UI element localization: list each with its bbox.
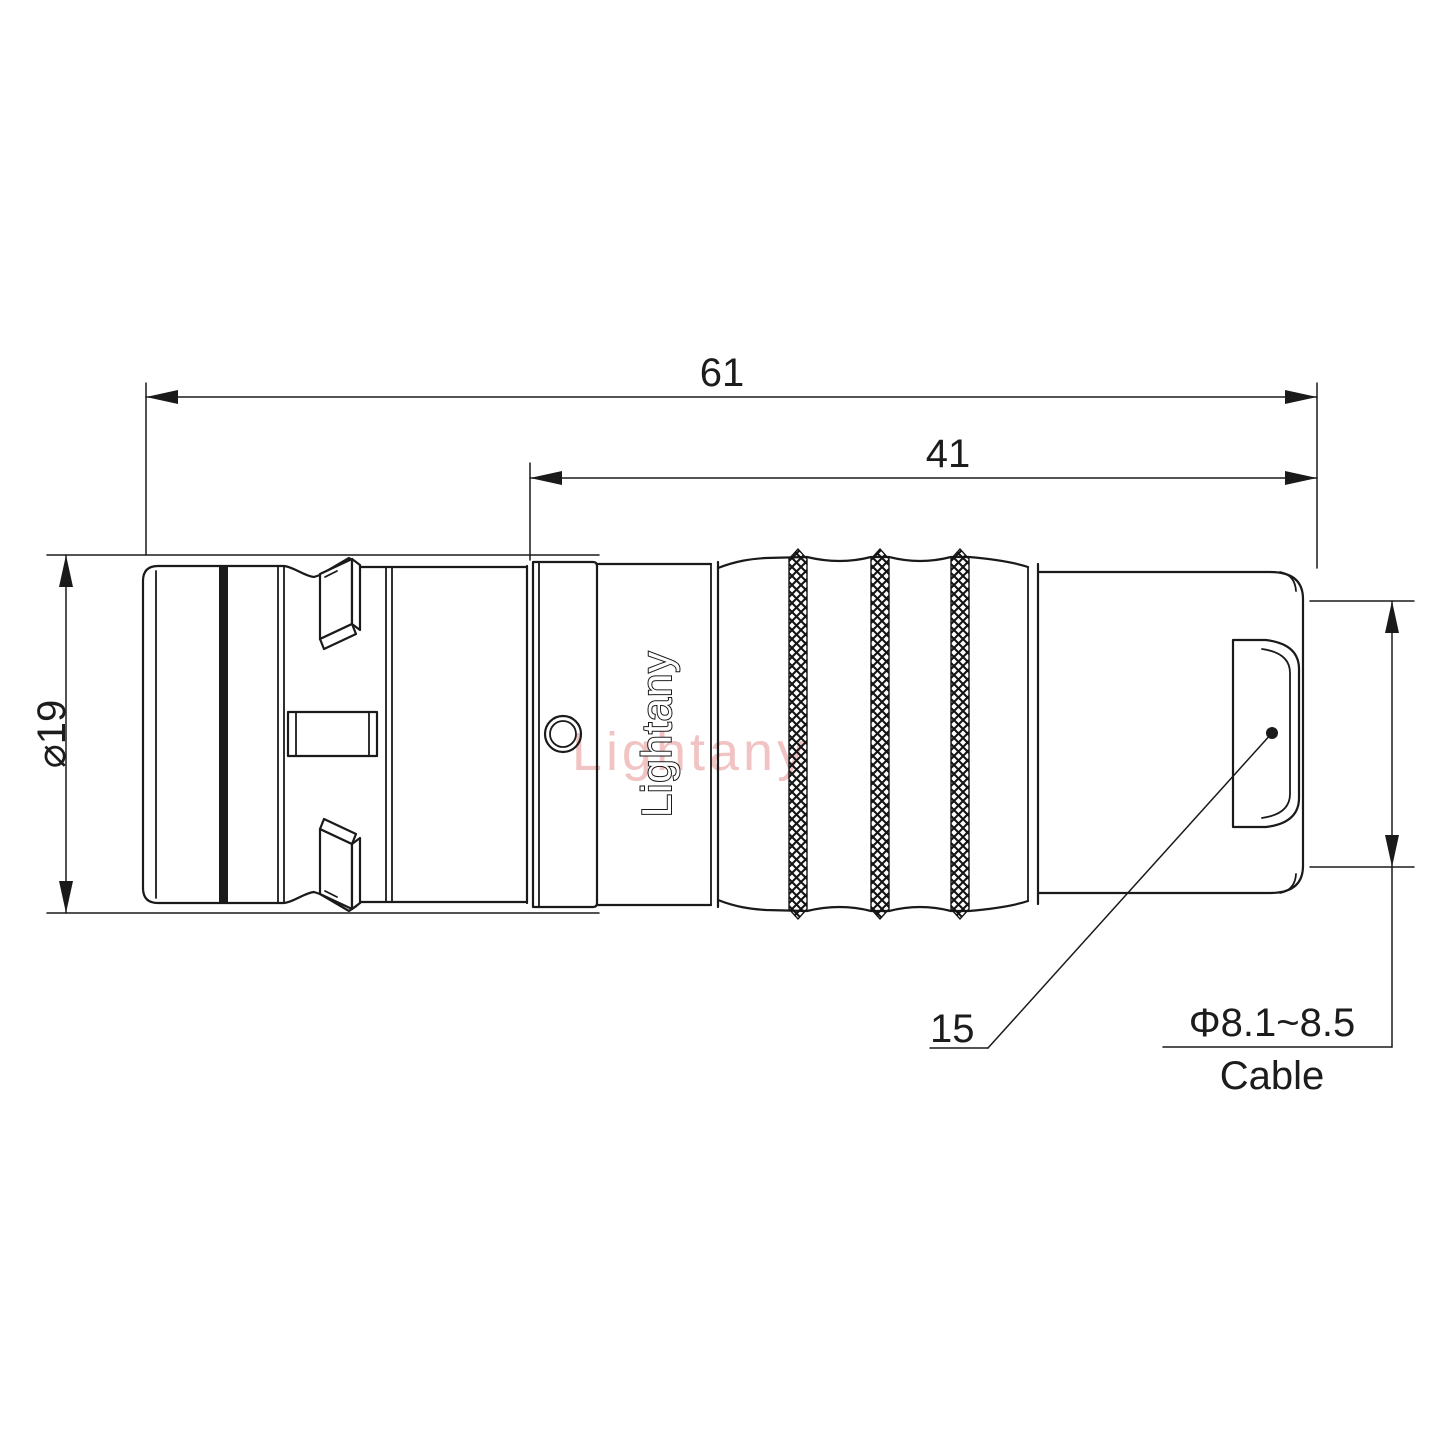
watermark-text: Lightany: [572, 722, 808, 782]
connector-drawing: Lightany: [0, 0, 1440, 1440]
seal-band: [219, 566, 228, 903]
cable-word-label: Cable: [1220, 1054, 1325, 1098]
technical-drawing-page: Lightany: [0, 0, 1440, 1440]
bayonet-latch-top: [320, 559, 360, 649]
knurl-band: [789, 549, 807, 919]
dimension-rear-length: 41: [530, 432, 1317, 560]
dim-overall-length-value: 61: [700, 351, 745, 395]
dim-rear-length-value: 41: [926, 432, 971, 476]
knurl-band: [951, 549, 969, 919]
brand-text: Lightany: [633, 651, 680, 818]
leader-dot: [1266, 727, 1278, 739]
dimension-overall-length: 61: [146, 351, 1317, 568]
knurl-band: [871, 549, 889, 919]
dim-body-diameter-value: ⌀19: [30, 700, 74, 769]
bayonet-latch-bottom: [320, 819, 360, 909]
locking-slot: [288, 712, 377, 756]
cable-diameter-value: Φ8.1~8.5: [1189, 1001, 1355, 1045]
nut-size-value: 15: [930, 1007, 975, 1051]
